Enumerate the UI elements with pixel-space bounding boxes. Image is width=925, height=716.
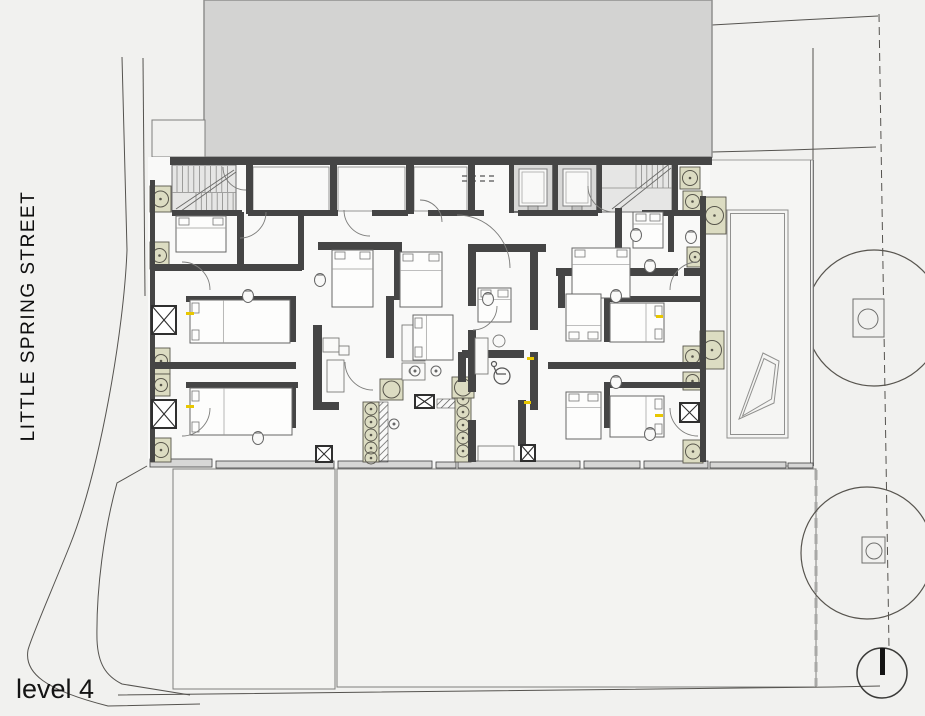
balcony-parapet [788, 463, 813, 468]
street-tree-stem [880, 648, 885, 675]
plant-dot [160, 384, 162, 386]
wall-segment [672, 162, 678, 213]
bed [610, 303, 664, 342]
wall-segment [468, 244, 476, 306]
wall-segment [558, 276, 565, 308]
level-label: level 4 [16, 674, 94, 705]
wall-segment [553, 161, 558, 213]
service-room [414, 167, 467, 211]
plant-dot [692, 201, 694, 203]
hatched-wall [437, 399, 457, 408]
bed [176, 216, 226, 252]
wall-segment [518, 400, 526, 446]
wall-segment [530, 352, 538, 410]
plant-dot [711, 349, 713, 351]
wall-segment [318, 242, 402, 250]
plant-dot [160, 449, 162, 451]
balcony-parapet [458, 461, 580, 468]
wall-segment [468, 163, 475, 214]
wall-segment [468, 420, 476, 462]
wall-segment [372, 210, 408, 216]
wall-segment [509, 161, 514, 213]
furniture-outline [339, 346, 349, 355]
wall-segment [604, 382, 610, 428]
plant-dot [370, 457, 372, 459]
wall-segment [313, 402, 339, 410]
wall-segment [172, 210, 242, 216]
wall-segment [476, 244, 546, 252]
furniture-outline [475, 338, 488, 374]
site-boundary-line [143, 58, 145, 296]
wall-segment [330, 163, 337, 214]
lift-car [563, 169, 591, 206]
wall-segment [462, 350, 524, 358]
wall-segment [313, 325, 322, 405]
plant-dot [370, 421, 372, 423]
plant-dot [714, 215, 716, 217]
bed [566, 392, 601, 439]
sink-drain [393, 423, 395, 425]
plant-dot [689, 177, 691, 179]
wall-segment [548, 362, 700, 369]
plant-dot [692, 380, 694, 382]
wall-segment [237, 212, 244, 268]
neighbour-building-mass [204, 0, 712, 157]
wall-segment [668, 212, 674, 252]
furniture-outline [323, 338, 339, 352]
sink-drain [435, 370, 437, 372]
street-name-label: LITTLE SPRING STREET [18, 191, 40, 442]
balcony-parapet [436, 462, 456, 468]
bed [190, 300, 290, 343]
plant-dot [160, 198, 162, 200]
plant-dot [462, 411, 464, 413]
threshold-mark [527, 357, 534, 360]
balcony-parapet [584, 461, 640, 468]
plant-dot [462, 424, 464, 426]
plant-dot [462, 437, 464, 439]
wall-segment [386, 296, 394, 358]
lift-car [519, 169, 547, 206]
plant-dot [692, 356, 694, 358]
wall-segment [700, 196, 706, 462]
bed [190, 388, 292, 435]
bed [572, 248, 630, 298]
floor-plan-drawing [0, 0, 925, 716]
plant-dot [692, 451, 694, 453]
threshold-mark [656, 315, 663, 318]
wall-segment [154, 264, 302, 271]
wall-segment [246, 163, 253, 214]
site-boundary-line [712, 147, 876, 152]
wall-segment [248, 210, 338, 216]
bed [566, 294, 601, 341]
furniture-outline [327, 360, 344, 392]
plant-dot [370, 408, 372, 410]
threshold-mark [524, 401, 531, 404]
plant-dot [370, 447, 372, 449]
plant-dot [462, 450, 464, 452]
service-room [338, 167, 405, 211]
service-room [253, 167, 329, 211]
wall-segment [684, 268, 700, 276]
furniture-outline [478, 446, 514, 461]
wall-segment [290, 296, 296, 342]
wall-segment [406, 163, 414, 214]
neighbour-building-notch [152, 120, 205, 157]
wall-segment [186, 382, 298, 388]
threshold-mark [655, 414, 663, 417]
wall-segment [530, 252, 538, 330]
plant-dot [370, 434, 372, 436]
site-boundary-line [712, 16, 878, 25]
site-plan-canvas: LITTLE SPRING STREET level 4 [0, 0, 925, 716]
wall-segment [298, 216, 304, 270]
wall-segment [428, 210, 484, 216]
wall-segment [597, 161, 602, 213]
wall-segment [458, 352, 466, 382]
bed [400, 252, 442, 307]
balcony-parapet [710, 462, 786, 468]
wall-segment [604, 296, 610, 342]
plant-dot [160, 360, 162, 362]
bed [332, 250, 373, 307]
sink-drain [414, 370, 416, 372]
wall-segment [154, 362, 296, 369]
bed [413, 315, 453, 360]
threshold-mark [186, 312, 194, 315]
lower-roof-outline [173, 469, 335, 689]
wall-segment [518, 210, 598, 216]
lower-roof-outline [337, 469, 816, 687]
plant-dot [694, 256, 696, 258]
plant-dot [159, 255, 161, 257]
threshold-mark [186, 405, 194, 408]
